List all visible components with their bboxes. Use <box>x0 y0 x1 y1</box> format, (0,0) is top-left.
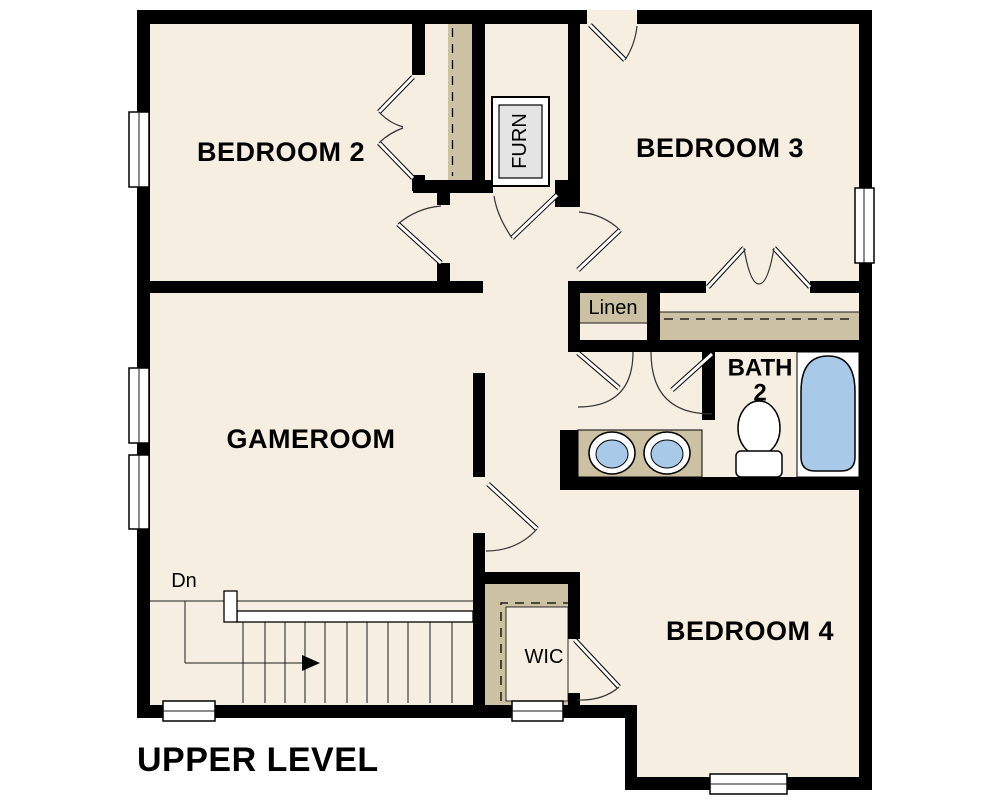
wall <box>412 24 425 75</box>
furnace-label: FURN <box>509 113 531 169</box>
stair-rail <box>237 611 473 622</box>
bedroom3-closet-shelf <box>660 312 859 340</box>
wall <box>473 572 578 584</box>
wall <box>810 281 872 293</box>
wall <box>568 281 706 293</box>
wall <box>568 693 580 705</box>
wall <box>437 192 450 205</box>
stairs-down-label: Dn <box>171 570 197 592</box>
window-icon <box>855 188 874 263</box>
window-icon <box>129 368 149 443</box>
wic-label: WIC <box>525 646 564 668</box>
wall <box>555 180 568 207</box>
sink-left-icon <box>589 432 635 474</box>
floor-plan-drawing: FURN <box>0 0 1000 800</box>
stair-newel-post <box>224 591 237 622</box>
bedroom2-closet-shelf <box>448 24 472 180</box>
wall <box>437 263 450 281</box>
bedroom2-label: BEDROOM 2 <box>197 137 365 167</box>
bath2-label-line2: 2 <box>753 380 766 407</box>
furnace-unit: FURN <box>492 97 549 186</box>
wall <box>637 10 872 24</box>
bath2-label-line1: BATH <box>728 355 793 382</box>
bedroom3-label: BEDROOM 3 <box>636 133 804 163</box>
bedroom4-label: BEDROOM 4 <box>666 616 834 646</box>
wall <box>568 572 580 639</box>
linen-label: Linen <box>589 297 638 319</box>
wall <box>560 477 872 490</box>
gameroom-label: GAMEROOM <box>227 424 396 454</box>
wall <box>137 281 483 293</box>
wall <box>473 373 485 477</box>
page-title: UPPER LEVEL <box>137 741 379 779</box>
wall <box>137 10 587 24</box>
wall <box>472 24 485 192</box>
wall <box>568 24 580 207</box>
bathtub-icon <box>801 356 855 471</box>
window-icon <box>163 701 215 721</box>
floor-plan-page: FURN <box>0 0 1000 800</box>
window-icon <box>512 701 563 721</box>
window-icon <box>129 455 149 529</box>
wall <box>859 10 872 790</box>
sink-right-icon <box>644 432 690 474</box>
wall <box>473 533 485 718</box>
toilet-icon <box>736 401 782 477</box>
top-door-opening <box>587 10 637 24</box>
window-icon <box>129 112 149 187</box>
wall <box>568 340 872 352</box>
window-icon <box>710 774 787 794</box>
